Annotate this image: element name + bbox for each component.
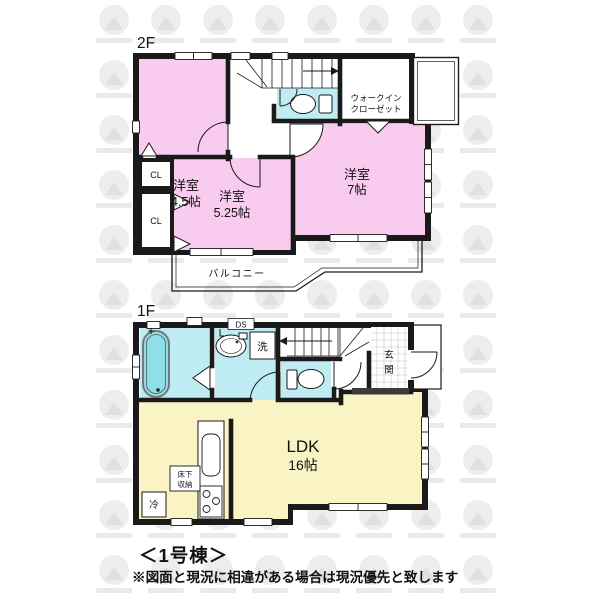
genkan-label-1: 玄 [384, 349, 394, 361]
floorplan-page: 2F [0, 0, 600, 600]
duct-space: DS [228, 319, 254, 330]
disclaimer-text: ※図面と現況に相違がある場合は現況優先と致します [132, 569, 458, 585]
ldk-name: LDK [286, 437, 320, 456]
genkan-label-2: 関 [384, 365, 394, 376]
building-label: ＜1号棟＞ [139, 545, 228, 566]
refrigerator-space: 冷 [142, 492, 166, 517]
underfloor-label-2: 収納 [178, 479, 193, 489]
fridge-label: 冷 [149, 499, 159, 511]
room525-size: 5.25帖 [214, 205, 251, 220]
footer: ＜1号棟＞ ※図面と現況に相違がある場合は現況優先と致します [132, 545, 458, 585]
laundry-space: 洗 [250, 332, 275, 359]
room7-size: 7帖 [347, 182, 366, 197]
room-yoshitsu-45 [139, 59, 228, 156]
underfloor-label-1: 床下 [178, 469, 193, 479]
kitchen-counter [198, 421, 224, 519]
toilet-icon-1f [287, 370, 324, 390]
entrance-door-gap [408, 350, 415, 380]
wic-label-2: クローゼット [350, 104, 401, 114]
floor-1f: 1F 玄 関 [133, 303, 442, 526]
kitchen-sink-icon [202, 434, 220, 476]
entrance-step [352, 388, 409, 395]
annex-outline-2f [414, 58, 459, 125]
toilet-icon-2f [291, 95, 333, 114]
room45-size: 4.5帖 [171, 194, 201, 209]
laundry-label: 洗 [257, 341, 268, 353]
cl2-label: CL [150, 216, 162, 226]
underfloor-storage: 床下 収納 [170, 466, 200, 491]
floor2-label: 2F [137, 35, 155, 52]
balcony-label: バルコニー [208, 268, 265, 280]
floorplan-drawing: 2F [0, 0, 600, 600]
floor1-label: 1F [137, 303, 155, 320]
duct-label: DS [235, 321, 246, 330]
floor-2f: 2F [133, 35, 459, 291]
cl1-label: CL [150, 170, 162, 180]
room45-name: 洋室 [173, 178, 199, 193]
wic-label-1: ウォークイン [350, 93, 401, 103]
room7-name: 洋室 [344, 167, 370, 182]
room525-name: 洋室 [219, 189, 245, 204]
ldk-size: 16帖 [288, 457, 318, 473]
entrance-genkan: 玄 関 [371, 327, 408, 389]
bathtub-icon [143, 331, 169, 397]
room-ldk [139, 392, 422, 519]
